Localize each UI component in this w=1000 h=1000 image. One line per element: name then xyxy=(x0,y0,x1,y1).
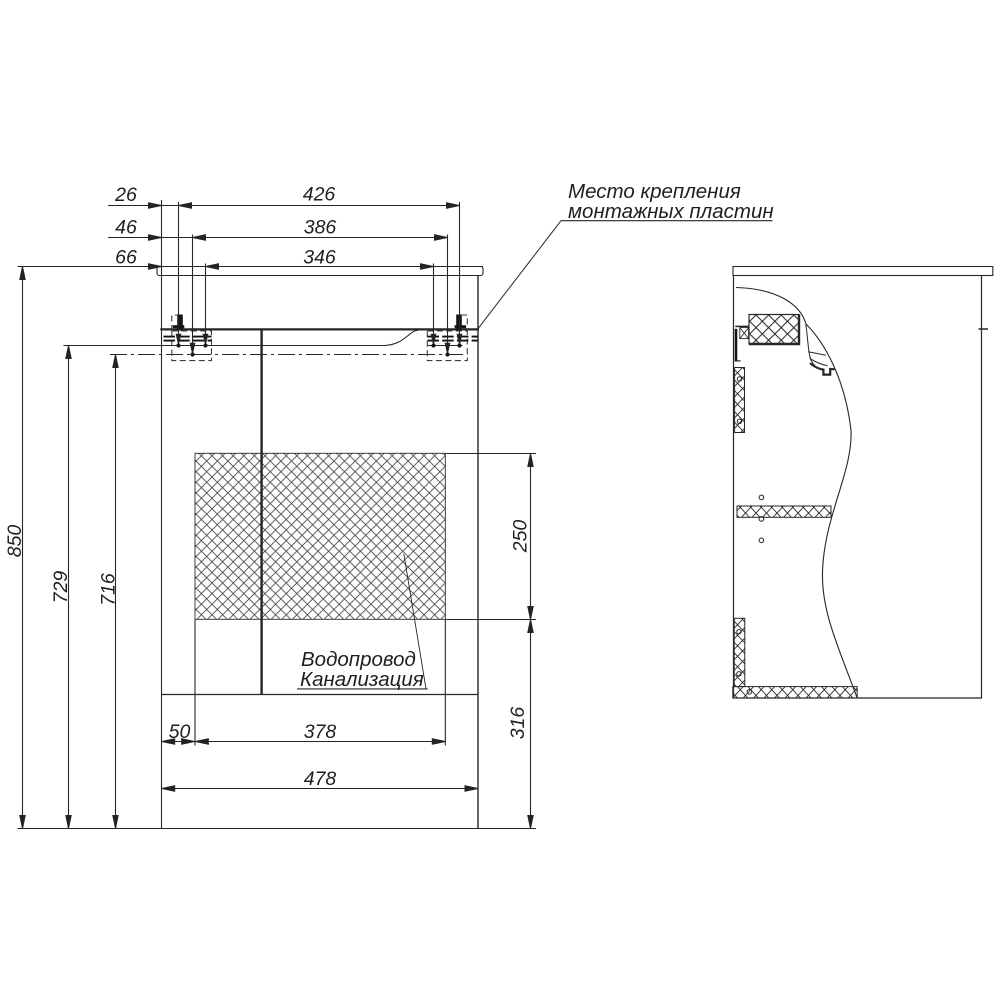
svg-text:46: 46 xyxy=(115,217,137,239)
svg-text:26: 26 xyxy=(114,184,137,206)
svg-text:426: 426 xyxy=(303,184,336,206)
svg-text:Канализация: Канализация xyxy=(300,668,424,691)
svg-text:850: 850 xyxy=(4,525,26,558)
svg-text:монтажных пластин: монтажных пластин xyxy=(568,200,774,223)
svg-text:66: 66 xyxy=(115,247,137,269)
svg-text:386: 386 xyxy=(304,217,337,239)
svg-text:716: 716 xyxy=(97,573,119,606)
svg-text:729: 729 xyxy=(50,571,72,604)
svg-text:478: 478 xyxy=(304,768,337,790)
svg-text:250: 250 xyxy=(510,520,532,554)
svg-text:50: 50 xyxy=(169,721,191,743)
svg-text:346: 346 xyxy=(303,247,336,269)
svg-text:316: 316 xyxy=(507,707,529,740)
svg-text:378: 378 xyxy=(304,721,337,743)
